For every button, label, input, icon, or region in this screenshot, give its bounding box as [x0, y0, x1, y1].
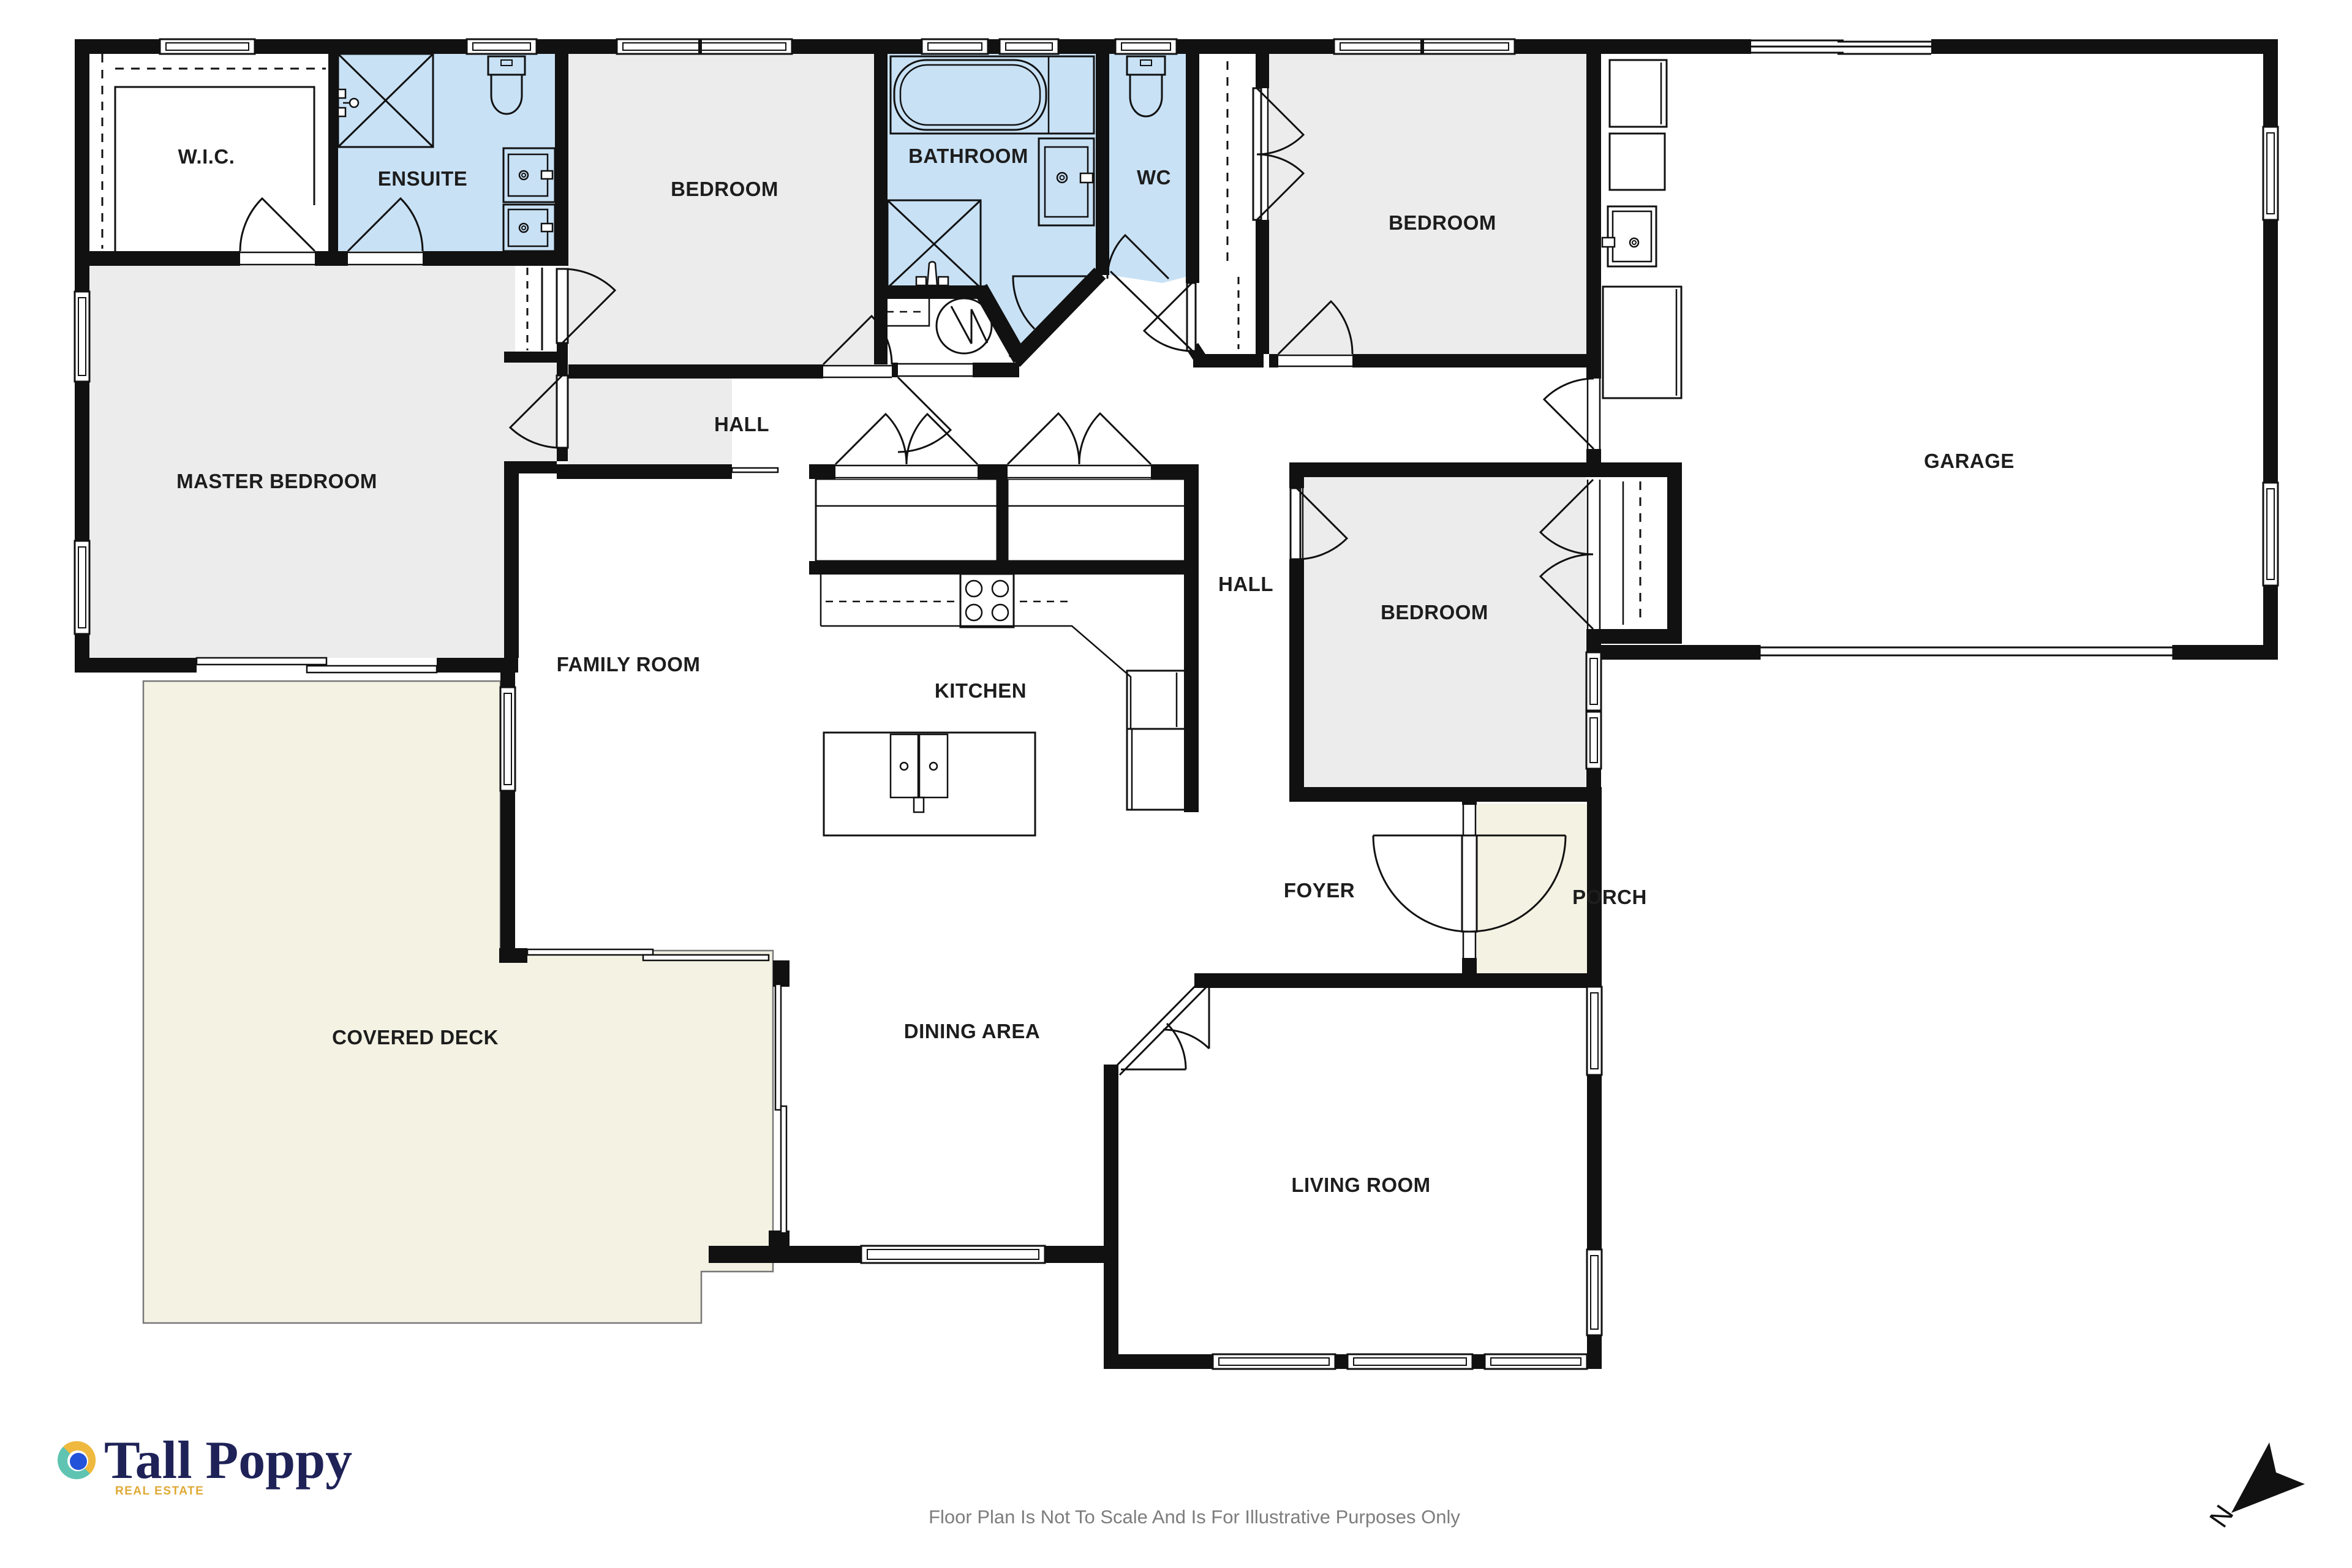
svg-text:GARAGE: GARAGE	[1924, 450, 2015, 472]
svg-text:BATHROOM: BATHROOM	[908, 145, 1028, 167]
svg-text:BEDROOM: BEDROOM	[1381, 601, 1488, 624]
svg-text:MASTER BEDROOM: MASTER BEDROOM	[176, 470, 377, 492]
svg-text:COVERED DECK: COVERED DECK	[332, 1026, 499, 1049]
svg-text:Tall Poppy: Tall Poppy	[104, 1431, 352, 1490]
svg-text:BEDROOM: BEDROOM	[671, 178, 778, 200]
svg-text:BEDROOM: BEDROOM	[1389, 211, 1496, 234]
svg-text:HALL: HALL	[714, 413, 769, 435]
svg-text:LIVING ROOM: LIVING ROOM	[1291, 1174, 1430, 1196]
svg-text:REAL ESTATE: REAL ESTATE	[115, 1485, 204, 1498]
svg-text:KITCHEN: KITCHEN	[935, 679, 1027, 702]
svg-text:Floor Plan Is Not To Scale And: Floor Plan Is Not To Scale And Is For Il…	[929, 1506, 1460, 1528]
svg-text:DINING AREA: DINING AREA	[904, 1020, 1040, 1042]
svg-text:FOYER: FOYER	[1284, 879, 1355, 902]
svg-text:HALL: HALL	[1218, 573, 1273, 595]
svg-text:ENSUITE: ENSUITE	[378, 167, 468, 190]
svg-text:WC: WC	[1137, 166, 1171, 189]
svg-text:W.I.C.: W.I.C.	[178, 145, 235, 168]
svg-text:PORCH: PORCH	[1572, 886, 1647, 908]
svg-text:FAMILY ROOM: FAMILY ROOM	[557, 653, 701, 676]
